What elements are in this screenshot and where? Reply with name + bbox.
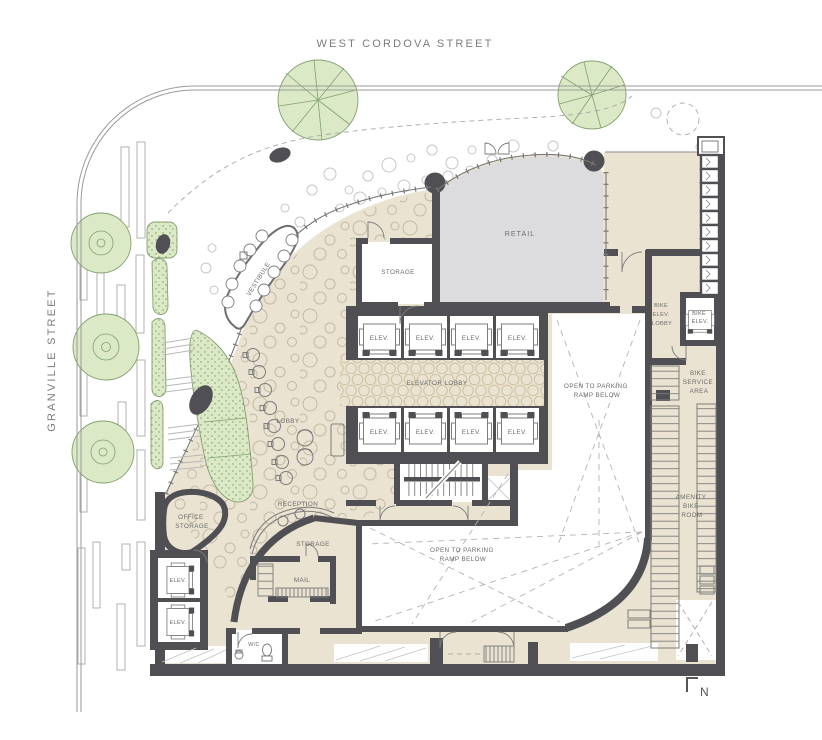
street-tree xyxy=(558,61,626,129)
label-reception: RECEPTION xyxy=(278,501,318,508)
core-stair xyxy=(404,462,480,498)
north-arrow: N xyxy=(687,678,709,699)
street-tree xyxy=(278,60,358,140)
label-elev: ELEV. xyxy=(508,335,527,342)
label-storage-upper: STORAGE xyxy=(381,269,414,276)
label-elev: ELEV. xyxy=(170,578,187,584)
label-elev: ELEV. xyxy=(416,429,435,436)
label-lobby: LOBBY xyxy=(277,418,300,425)
mailboxes xyxy=(276,588,328,597)
label-elev: ELEV. xyxy=(370,335,389,342)
street-label-left: GRANVILLE STREET xyxy=(46,288,58,431)
mail-stair xyxy=(258,564,273,596)
label-elev: ELEV. xyxy=(370,429,389,436)
void-strip xyxy=(334,644,428,662)
corner-planter xyxy=(147,222,177,258)
label-elev: ELEV. xyxy=(416,335,435,342)
label-retail: RETAIL xyxy=(505,231,536,238)
floor-plan-drawing: WEST CORDOVA STREET GRANVILLE STREET RET… xyxy=(0,0,822,740)
label-storage-lower: STORAGE xyxy=(296,541,329,548)
street-tree xyxy=(73,314,139,380)
label-bike-elev-lobby: BIKE ELEV. LOBBY xyxy=(652,303,672,327)
bike-lockers xyxy=(698,137,724,295)
label-elev: ELEV. xyxy=(170,620,187,626)
label-elev: ELEV. xyxy=(462,335,481,342)
street-label-top: WEST CORDOVA STREET xyxy=(316,38,493,50)
street-tree xyxy=(71,213,131,273)
floor-plan: WEST CORDOVA STREET GRANVILLE STREET RET… xyxy=(0,0,822,740)
label-elev: ELEV. xyxy=(508,429,527,436)
label-elevator-lobby: ELEVATOR LOBBY xyxy=(407,380,468,387)
label-elev: ELEV. xyxy=(462,429,481,436)
label-wc: W/C xyxy=(248,642,260,648)
north-arrow-label: N xyxy=(700,685,709,699)
label-mail: MAIL xyxy=(294,577,310,584)
void-strip xyxy=(570,643,658,661)
